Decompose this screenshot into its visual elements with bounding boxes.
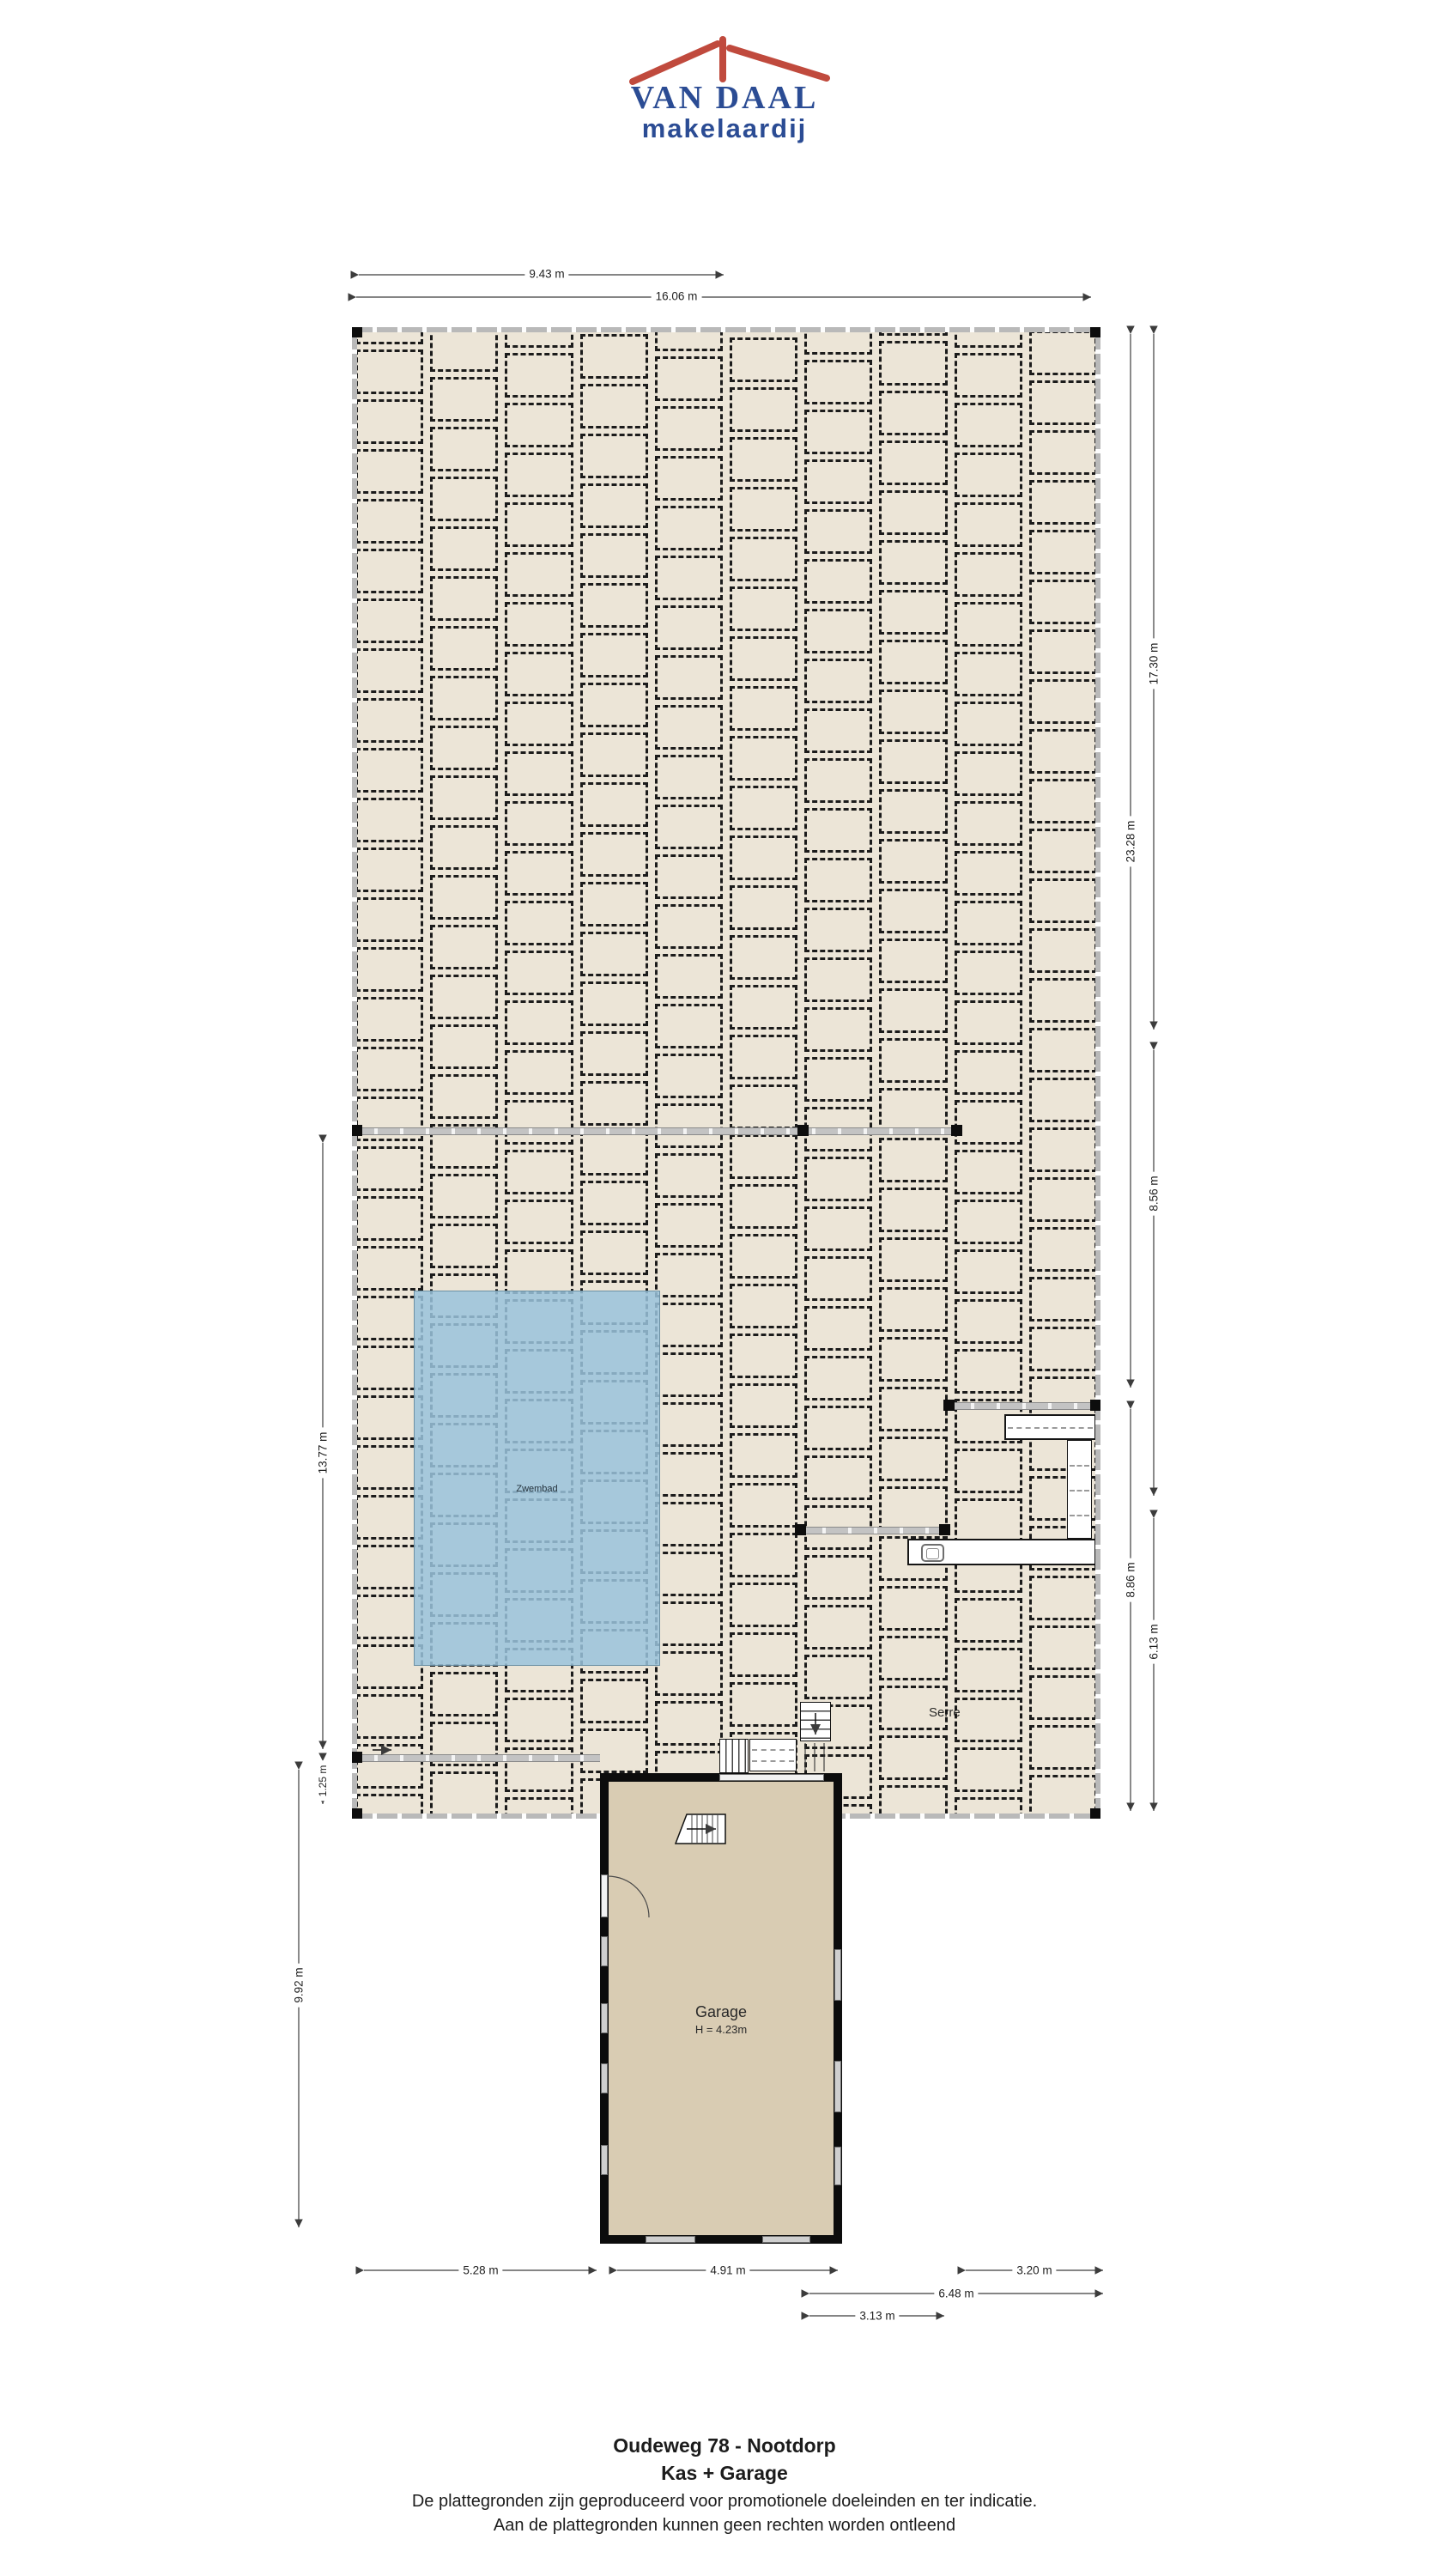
planting-bed-cell <box>804 659 872 703</box>
planting-bed-cell <box>580 932 648 976</box>
planting-bed-cell <box>430 676 498 720</box>
swimming-pool: Zwembad <box>414 1291 660 1666</box>
planting-bed-cell <box>1029 729 1097 774</box>
roof-icon <box>613 22 836 86</box>
planting-bed-cell <box>879 1735 947 1780</box>
wall-post <box>1090 1808 1100 1819</box>
planting-bed-cell <box>879 1636 947 1680</box>
planting-bed-cell <box>655 1552 723 1596</box>
planting-bed-cell <box>879 939 947 983</box>
garage-window <box>601 1936 608 1966</box>
planting-bed-cell <box>730 1084 797 1129</box>
planting-bed-cell <box>580 483 648 528</box>
planting-bed-cell <box>955 1747 1022 1792</box>
planting-bed-cell <box>730 1483 797 1528</box>
planting-bed-cell <box>804 410 872 454</box>
planting-bed-cell <box>505 801 573 846</box>
planting-bed-cell <box>355 549 423 593</box>
planting-bed-cell <box>430 377 498 422</box>
wall-post <box>951 1125 962 1136</box>
planting-bed-cell <box>730 1533 797 1577</box>
planting-bed-cell <box>955 751 1022 796</box>
stairs-right <box>719 1739 749 1773</box>
planting-bed-cell <box>1029 430 1097 475</box>
brand-name: VAN DAAL <box>0 79 1449 117</box>
planting-bed-cell <box>730 586 797 631</box>
planting-bed-cell <box>655 1402 723 1447</box>
planting-bed-cell <box>955 353 1022 398</box>
floorplan-page: VAN DAAL makelaardij Zwembad <box>0 0 1449 2576</box>
garage-window <box>834 2147 841 2185</box>
pool-label: Zwembad <box>415 1484 659 1494</box>
planting-bed-cell <box>430 1672 498 1716</box>
planting-bed-cell <box>1029 679 1097 724</box>
planting-bed-cell <box>955 801 1022 846</box>
planting-bed-cell <box>730 1383 797 1428</box>
wall-post <box>943 1400 955 1411</box>
disclaimer-line-1: De plattegronden zijn geproduceerd voor … <box>0 2492 1449 2512</box>
planting-bed-cell <box>505 552 573 597</box>
planting-bed-cell <box>430 526 498 571</box>
planting-bed-cell <box>730 636 797 681</box>
planting-bed-cell <box>580 732 648 777</box>
planting-bed-cell <box>804 1555 872 1600</box>
planting-bed-cell <box>955 1648 1022 1692</box>
planting-bed-cell <box>655 655 723 700</box>
planting-bed-cell <box>655 1054 723 1098</box>
planting-bed-cell <box>804 1356 872 1400</box>
wall-post <box>352 327 362 337</box>
planting-bed-cell <box>804 1206 872 1251</box>
planting-bed-cell <box>804 808 872 853</box>
planting-bed-cell <box>580 384 648 428</box>
planting-bed-cell <box>730 487 797 532</box>
room-divider <box>1070 1465 1089 1467</box>
planting-bed-cell <box>430 576 498 621</box>
serre-label: Serre <box>929 1705 961 1720</box>
garage-label: Garage <box>609 2003 834 2021</box>
planting-bed-cell <box>505 353 573 398</box>
planting-bed-cell <box>655 1203 723 1248</box>
planting-bed-cell <box>355 748 423 793</box>
planting-bed-cell <box>580 434 648 478</box>
planting-bed-cell <box>804 708 872 753</box>
wall-post <box>795 1524 806 1535</box>
planting-bed-cell <box>505 1249 573 1294</box>
sink-icon <box>921 1544 944 1562</box>
planting-bed-cell <box>1029 1675 1097 1720</box>
garage-window <box>834 2061 841 2112</box>
planting-bed-cell <box>1029 1725 1097 1770</box>
room-divider <box>1070 1515 1089 1516</box>
planting-bed-cell <box>505 502 573 547</box>
planting-bed-cell <box>655 1651 723 1696</box>
planting-bed-cell <box>955 1449 1022 1493</box>
planting-bed-cell <box>655 506 723 550</box>
planting-bed-cell <box>955 602 1022 647</box>
planting-bed-cell <box>804 1256 872 1301</box>
planting-bed-cell <box>355 1694 423 1739</box>
partition-wall <box>800 1527 944 1534</box>
planting-bed-cell <box>355 499 423 544</box>
wall-post <box>939 1524 950 1535</box>
planting-bed-cell <box>655 556 723 600</box>
planting-bed-cell <box>955 1498 1022 1543</box>
planting-bed-cell <box>879 889 947 933</box>
planting-bed-cell <box>655 406 723 451</box>
planting-bed-cell <box>879 440 947 485</box>
planting-bed-cell <box>580 832 648 877</box>
planting-bed-cell <box>655 904 723 949</box>
planting-bed-cell <box>430 1174 498 1218</box>
planting-bed-cell <box>804 1655 872 1699</box>
planting-bed-cell <box>730 337 797 382</box>
planting-bed-cell <box>804 1406 872 1450</box>
planting-bed-cell <box>804 957 872 1002</box>
planting-bed-cell <box>505 702 573 746</box>
planting-bed-cell <box>655 755 723 799</box>
planting-bed-cell <box>804 1455 872 1500</box>
dim-label-bottom-4: 6.48 m <box>934 2287 978 2300</box>
planting-bed-cell <box>355 1146 423 1191</box>
planting-bed-cell <box>804 609 872 653</box>
dim-label-left-2: 1.25 m <box>317 1761 329 1801</box>
planting-bed-cell <box>1029 1625 1097 1670</box>
planting-bed-cell <box>1029 1227 1097 1272</box>
planting-bed-cell <box>804 1157 872 1201</box>
planting-bed-cell <box>430 925 498 969</box>
planting-bed-cell <box>430 327 498 372</box>
planting-bed-cell <box>355 798 423 842</box>
planting-bed-cell <box>1029 629 1097 674</box>
garage-sliding-door <box>719 1774 824 1781</box>
planting-bed-cell <box>505 403 573 447</box>
planting-bed-cell <box>730 935 797 980</box>
planting-bed-cell <box>505 1000 573 1045</box>
planting-bed-cell <box>1029 1028 1097 1072</box>
planting-bed-cell <box>879 540 947 585</box>
planting-bed-cell <box>655 356 723 401</box>
planting-bed-cell <box>1029 530 1097 574</box>
planting-bed-cell <box>580 1081 648 1126</box>
room-divider <box>752 1749 794 1751</box>
planting-bed-cell <box>655 1103 723 1148</box>
planting-bed-cell <box>655 705 723 750</box>
planting-bed-cell <box>1029 928 1097 973</box>
dim-label-left-3: 9.92 m <box>293 1963 306 2007</box>
room-divider <box>1008 1427 1093 1429</box>
garage-window <box>762 2236 810 2243</box>
address-title: Oudeweg 78 - Nootdorp <box>0 2434 1449 2458</box>
planting-bed-cell <box>580 1679 648 1723</box>
planting-bed-cell <box>655 1153 723 1198</box>
planting-bed-cell <box>804 858 872 902</box>
hatched-area <box>797 1743 833 1771</box>
storage-room <box>1004 1414 1096 1440</box>
planting-bed-cell <box>505 1050 573 1095</box>
planting-bed-cell <box>879 690 947 734</box>
garage-window <box>834 1949 841 2001</box>
planting-bed-cell <box>580 1230 648 1275</box>
planting-bed-cell <box>879 789 947 834</box>
dim-label-top-2: 16.06 m <box>652 290 702 303</box>
planting-bed-cell <box>730 1682 797 1727</box>
planting-bed-cell <box>955 403 1022 447</box>
dim-label-bottom-3: 3.20 m <box>1012 2264 1056 2277</box>
planting-bed-cell <box>1029 1277 1097 1321</box>
planting-bed-cell <box>804 459 872 504</box>
planting-bed-cell <box>1029 1078 1097 1122</box>
planting-bed-cell <box>730 686 797 731</box>
planting-bed-cell <box>355 1246 423 1291</box>
planting-bed-cell <box>355 1047 423 1091</box>
planting-bed-cell <box>730 437 797 482</box>
planting-bed-cell <box>804 758 872 803</box>
planting-bed-cell <box>879 1237 947 1282</box>
planting-bed-cell <box>879 640 947 684</box>
dim-label-right-3: 8.56 m <box>1148 1171 1161 1215</box>
garage-window <box>601 2003 608 2033</box>
planting-bed-cell <box>1029 1177 1097 1222</box>
planting-bed-cell <box>580 633 648 677</box>
planting-bed-cell <box>655 805 723 849</box>
planting-bed-cell <box>505 1200 573 1244</box>
planting-bed-cell <box>955 453 1022 497</box>
planting-bed-cell <box>505 951 573 995</box>
planting-bed-cell <box>1029 1127 1097 1172</box>
planting-bed-cell <box>655 605 723 650</box>
planting-bed-cell <box>505 1698 573 1742</box>
planting-bed-cell <box>580 782 648 827</box>
plan-subtitle: Kas + Garage <box>0 2462 1449 2485</box>
dim-label-right-2: 23.28 m <box>1125 817 1137 867</box>
planting-bed-cell <box>430 1024 498 1069</box>
planting-bed-cell <box>879 490 947 535</box>
planting-bed-cell <box>1029 878 1097 923</box>
planting-bed-cell <box>655 1352 723 1397</box>
planting-bed-cell <box>879 1337 947 1382</box>
planting-bed-cell <box>879 988 947 1033</box>
counter-with-sink <box>907 1539 1096 1565</box>
planting-bed-cell <box>955 1598 1022 1643</box>
planting-bed-cell <box>955 1698 1022 1742</box>
planting-bed-cell <box>505 1100 573 1145</box>
planting-bed-cell <box>955 1150 1022 1194</box>
dim-label-bottom-1: 5.28 m <box>458 2264 502 2277</box>
planting-bed-cell <box>580 683 648 727</box>
garage-window <box>646 2236 695 2243</box>
planting-bed-cell <box>804 1306 872 1351</box>
planting-bed-cell <box>505 1150 573 1194</box>
planting-bed-cell <box>655 1502 723 1546</box>
wall-post <box>1090 327 1100 337</box>
planting-bed-cell <box>955 1299 1022 1344</box>
room-divider <box>1070 1490 1089 1492</box>
planting-bed-cell <box>430 1224 498 1268</box>
planting-bed-cell <box>1029 331 1097 375</box>
planting-bed-cell <box>505 602 573 647</box>
planting-bed-cell <box>1029 1327 1097 1371</box>
planting-bed-cell <box>1029 1775 1097 1819</box>
planting-bed-cell <box>1029 480 1097 525</box>
wall-post <box>352 1752 362 1763</box>
planting-bed-cell <box>879 739 947 784</box>
glass-wall-right <box>1095 327 1100 1819</box>
planting-bed-cell <box>355 648 423 693</box>
planting-bed-cell <box>655 1004 723 1048</box>
dim-label-bottom-5: 3.13 m <box>855 2310 899 2323</box>
dim-label-bottom-2: 4.91 m <box>706 2264 749 2277</box>
planting-bed-cell <box>879 1038 947 1083</box>
planting-bed-cell <box>804 360 872 404</box>
planting-bed-cell <box>955 702 1022 746</box>
planting-bed-cell <box>804 908 872 952</box>
planting-bed-cell <box>955 1349 1022 1394</box>
planting-bed-cell <box>730 1433 797 1478</box>
planting-bed-cell <box>955 502 1022 547</box>
planting-bed-cell <box>430 875 498 920</box>
planting-bed-cell <box>430 975 498 1019</box>
partition-wall <box>949 1402 1100 1410</box>
planting-bed-cell <box>804 509 872 554</box>
planting-bed-cell <box>730 1632 797 1677</box>
planting-bed-cell <box>580 1031 648 1076</box>
planting-bed-cell <box>655 1701 723 1746</box>
planting-bed-cell <box>580 1131 648 1176</box>
planting-bed-cell <box>580 1728 648 1773</box>
planting-bed-cell <box>655 1452 723 1497</box>
planting-bed-cell <box>730 885 797 930</box>
brand-tagline: makelaardij <box>0 113 1449 144</box>
wall-post <box>352 1125 362 1136</box>
planting-bed-cell <box>1029 978 1097 1023</box>
planting-bed-cell <box>655 456 723 501</box>
planting-bed-cell <box>1029 580 1097 624</box>
planting-bed-cell <box>879 391 947 435</box>
planting-bed-cell <box>804 1007 872 1052</box>
planting-bed-cell <box>355 698 423 743</box>
planting-bed-cell <box>955 1050 1022 1095</box>
planting-bed-cell <box>879 1387 947 1431</box>
planting-bed-cell <box>730 1334 797 1378</box>
planting-bed-cell <box>355 598 423 643</box>
planting-bed-cell <box>505 453 573 497</box>
planting-bed-cell <box>955 951 1022 995</box>
partition-wall <box>352 1127 956 1135</box>
planting-bed-cell <box>730 1184 797 1229</box>
planting-bed-cell <box>580 981 648 1026</box>
planting-bed-cell <box>879 1586 947 1631</box>
dim-label-right-1: 17.30 m <box>1148 639 1161 690</box>
dim-label-right-4: 8.86 m <box>1125 1558 1137 1601</box>
planting-bed-cell <box>955 901 1022 945</box>
greenhouse-plan: Zwembad Serre <box>352 327 1100 1819</box>
planting-bed-cell <box>1029 779 1097 823</box>
planting-bed-cell <box>430 477 498 521</box>
wall-post <box>797 1125 809 1136</box>
planting-bed-cell <box>730 1284 797 1328</box>
garage-window <box>601 2063 608 2093</box>
planting-bed-cell <box>730 786 797 830</box>
planting-bed-cell <box>955 1200 1022 1244</box>
planting-bed-cell <box>355 997 423 1042</box>
planting-bed-cell <box>879 1188 947 1232</box>
planting-bed-cell <box>879 1088 947 1133</box>
planting-bed-cell <box>730 1035 797 1079</box>
planting-bed-cell <box>955 1100 1022 1145</box>
planting-bed-cell <box>804 559 872 604</box>
glass-wall-top <box>352 327 1100 332</box>
glass-wall-left <box>352 327 357 1819</box>
planting-bed-cell <box>580 334 648 379</box>
garage-door-opening <box>601 1874 608 1917</box>
planting-bed-cell <box>879 839 947 884</box>
planting-bed-cell <box>430 1074 498 1119</box>
planting-bed-cell <box>1029 829 1097 873</box>
dim-label-left-1: 13.77 m <box>317 1428 330 1479</box>
stairs-down <box>800 1702 831 1741</box>
planting-bed-cell <box>430 726 498 770</box>
planting-bed-cell <box>655 954 723 999</box>
planting-bed-cell <box>355 848 423 892</box>
entry-room <box>749 1739 797 1771</box>
planting-bed-cell <box>655 854 723 899</box>
narrow-room <box>1067 1440 1092 1539</box>
planting-bed-cell <box>1029 1576 1097 1620</box>
planting-bed-cell <box>655 1303 723 1347</box>
planting-bed-cell <box>879 1138 947 1182</box>
planting-bed-cell <box>505 652 573 696</box>
planting-bed-cell <box>355 1196 423 1241</box>
dim-label-top-1: 9.43 m <box>524 268 568 281</box>
planting-bed-cell <box>430 427 498 471</box>
planting-bed-cell <box>879 1437 947 1481</box>
planting-bed-cell <box>955 1000 1022 1045</box>
planting-bed-cell <box>580 882 648 927</box>
planting-bed-cell <box>730 835 797 880</box>
planting-bed-cell <box>804 1605 872 1649</box>
planting-bed-cell <box>430 775 498 820</box>
planting-bed-cell <box>804 1057 872 1102</box>
planting-bed-cell <box>505 851 573 896</box>
planting-bed-cell <box>430 626 498 671</box>
garage: Garage H = 4.23m <box>600 1773 842 2244</box>
planting-bed-cell <box>955 552 1022 597</box>
planting-bed-cell <box>430 1771 498 1816</box>
planting-bed-cell <box>580 1181 648 1225</box>
planting-bed-cell <box>505 751 573 796</box>
planting-bed-cell <box>355 449 423 494</box>
wall-post <box>352 1808 362 1819</box>
planting-bed-cell <box>655 1601 723 1646</box>
planting-bed-cell <box>730 387 797 432</box>
planting-bed-cell <box>730 736 797 781</box>
planting-bed-cell <box>355 1744 423 1789</box>
planting-bed-cell <box>355 947 423 992</box>
planting-bed-cell <box>580 583 648 628</box>
planting-bed-cell <box>879 1287 947 1332</box>
garage-height-label: H = 4.23m <box>609 2023 834 2036</box>
planting-bed-cell <box>730 1134 797 1179</box>
garage-window <box>601 2145 608 2175</box>
planting-bed-cell <box>1029 380 1097 425</box>
wall-post <box>1090 1400 1100 1411</box>
planting-bed-cell <box>355 399 423 444</box>
planting-bed-cell <box>955 851 1022 896</box>
planting-bed-cell <box>355 349 423 394</box>
planting-bed-cell <box>730 985 797 1030</box>
planting-bed-cell <box>955 652 1022 696</box>
